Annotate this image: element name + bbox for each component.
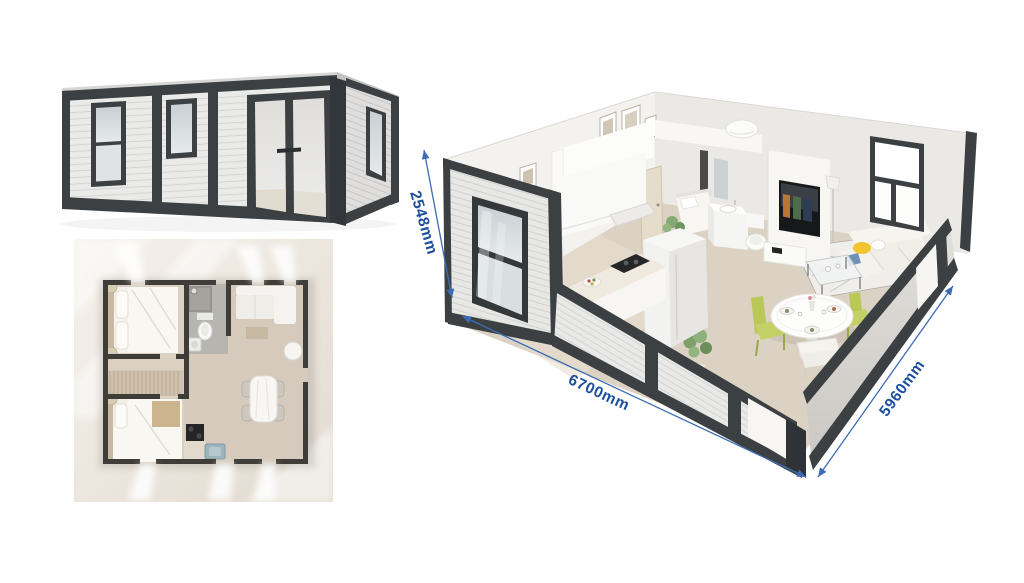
toilet [197, 313, 213, 340]
exterior-render [60, 72, 399, 232]
shower [188, 286, 212, 312]
height-dimension-label: 2548mm [406, 189, 440, 257]
plan-coffee-table [246, 327, 268, 339]
corner-post [330, 76, 346, 226]
bathroom-vanity [708, 200, 748, 250]
right-wall-window [870, 136, 924, 232]
frame-left-post [62, 91, 70, 210]
frame-post-1 [152, 85, 162, 213]
white-pillow [871, 240, 885, 250]
tv-screen [779, 180, 820, 237]
ottoman [284, 342, 302, 360]
plan-sofa [236, 286, 296, 324]
side-window [366, 106, 386, 182]
illustration-canvas: 2548mm 6700mm 5960mm [0, 0, 1024, 583]
ac-unit [726, 120, 758, 138]
bath-sink [188, 338, 201, 351]
french-doors [247, 90, 332, 223]
frame-post-2 [208, 82, 218, 215]
side-right-post [391, 96, 399, 205]
bedroom-window [472, 196, 528, 323]
facade-window-large [91, 101, 126, 187]
container-house-product-sheet: 2548mm 6700mm 5960mm [0, 0, 1024, 583]
interior-cutaway [443, 92, 977, 478]
bed-1 [106, 287, 178, 353]
bed-2 [106, 399, 182, 462]
yellow-pillow [853, 242, 871, 254]
facade-window-small [166, 98, 197, 159]
wardrobe [106, 371, 183, 396]
bathroom-mirror [714, 158, 728, 200]
floor-plan [74, 239, 333, 502]
